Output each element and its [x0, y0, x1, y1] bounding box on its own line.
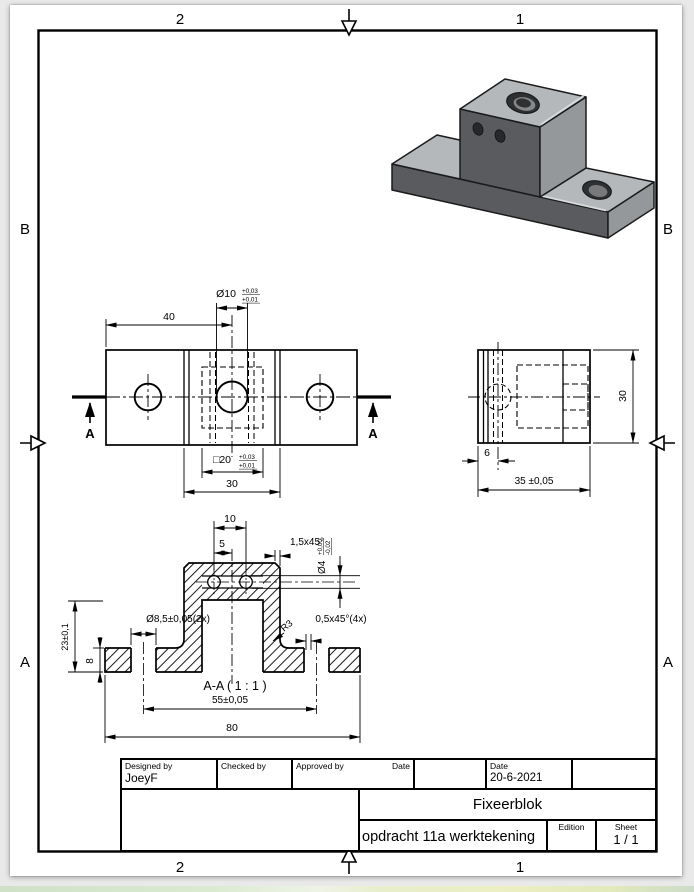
date-label-2: Date: [490, 761, 568, 771]
designed-by-value: JoeyF: [125, 771, 213, 785]
drawing-sheet-page: { "border": { "top": ["2", "1"], "bottom…: [0, 0, 694, 892]
side-dim-35-label: 35 ±0,05: [515, 476, 554, 487]
sec-chamfer-cb-label: 0,5x45°(4x): [315, 614, 366, 625]
dim-sq20-tol-lo: +0,01: [239, 463, 255, 470]
sec-fillet-label: R3: [279, 618, 295, 634]
sec-dim-d4-label: Ø4: [317, 560, 328, 574]
designed-by-label: Designed by: [125, 761, 213, 771]
centering-mark-right: [650, 436, 675, 450]
section-arrow-label-left: A: [85, 426, 95, 441]
section-arrow-label-right: A: [368, 426, 378, 441]
empty-cell-2: [573, 760, 655, 788]
dim-30-label: 30: [226, 478, 238, 490]
approved-by-cell: Approved by Date: [293, 760, 415, 788]
sec-dim-8-label: 8: [85, 658, 96, 664]
side-dim-6-label: 6: [484, 447, 490, 459]
dim-d10-label: Ø10: [216, 288, 236, 300]
isometric-view: [392, 79, 654, 238]
zone-top-1: 1: [516, 11, 524, 28]
dim-40-label: 40: [163, 311, 175, 323]
sec-dim-d85-label: Ø8,5±0,05(2x): [146, 614, 210, 625]
date-value: 20-6-2021: [490, 771, 568, 785]
sec-dim-23-label: 23±0,1: [60, 623, 70, 650]
dim-d10-tol-up: +0,03: [242, 288, 258, 295]
zone-right-a: A: [663, 654, 673, 671]
sec-dim-d4-tol-lo: -0,02: [325, 540, 332, 555]
section-view: 10 5 1,5x45° Ø4 +0,00 -0,02 Ø8,5±0,05(2x…: [60, 513, 367, 743]
zone-right-b: B: [663, 221, 673, 238]
zone-bottom-2: 2: [176, 859, 184, 876]
designed-by-cell: Designed by JoeyF: [122, 760, 218, 788]
part-title: Fixeerblok: [360, 790, 655, 821]
side-dim-30-label: 30: [617, 390, 629, 402]
date-label-1: Date: [392, 761, 410, 771]
sec-dim-10-label: 10: [224, 513, 236, 525]
top-view: A A 40 Ø10 +0,03 +0,01 □20 +0,03 +0,01 3…: [72, 288, 391, 498]
zone-top-2: 2: [176, 11, 184, 28]
dim-d10-tol-lo: +0,01: [242, 297, 258, 304]
title-block-row1: Designed by JoeyF Checked by Approved by…: [122, 760, 655, 790]
date-cell: Date 20-6-2021: [487, 760, 573, 788]
checked-by-label: Checked by: [221, 761, 288, 771]
section-view-title: A-A ( 1 : 1 ): [203, 679, 266, 693]
zone-left-a: A: [20, 654, 30, 671]
edition-label: Edition: [548, 822, 595, 832]
dim-sq20-tol-up: +0,03: [239, 454, 255, 461]
background-window-strip: [0, 886, 694, 892]
edition-cell: Edition: [548, 821, 597, 852]
zone-bottom-1: 1: [516, 859, 524, 876]
side-view: 30 6 35 ±0,05: [462, 342, 639, 497]
drawing-title: opdracht 11a werktekening: [360, 821, 548, 852]
sec-dim-55-label: 55±0,05: [212, 695, 249, 706]
sheet-value: 1 / 1: [597, 832, 655, 847]
empty-cell-1: [415, 760, 487, 788]
zone-left-b: B: [20, 221, 30, 238]
title-block-lower: Fixeerblok opdracht 11a werktekening Edi…: [122, 790, 655, 852]
sheet-label: Sheet: [597, 822, 655, 832]
dim-sq20-label: □20: [213, 454, 231, 466]
sec-dim-d4-tol-up: +0,00: [317, 539, 324, 555]
checked-by-cell: Checked by: [218, 760, 293, 788]
centering-mark-left: [20, 436, 45, 450]
sec-dim-5-label: 5: [219, 538, 225, 550]
approved-by-label: Approved by: [296, 761, 344, 771]
empty-cell-3: [122, 790, 360, 852]
sec-dim-80-label: 80: [226, 722, 238, 734]
sheet-cell: Sheet 1 / 1: [597, 821, 655, 852]
title-block: Designed by JoeyF Checked by Approved by…: [120, 758, 657, 852]
